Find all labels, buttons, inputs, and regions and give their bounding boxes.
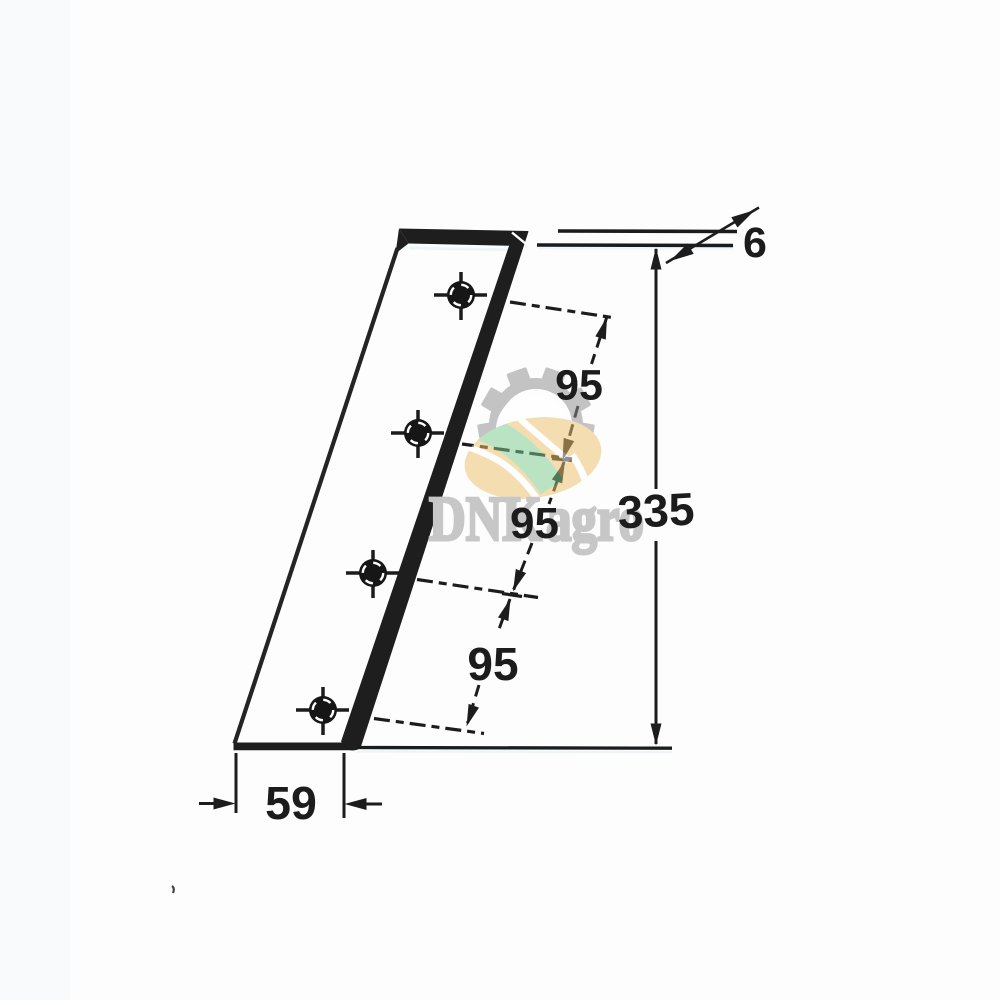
svg-text:335: 335 (616, 483, 695, 539)
svg-text:6: 6 (743, 219, 767, 267)
svg-text:95: 95 (555, 362, 603, 410)
svg-text:95: 95 (467, 638, 518, 690)
svg-text:59: 59 (265, 777, 317, 829)
svg-text:95: 95 (510, 499, 559, 548)
